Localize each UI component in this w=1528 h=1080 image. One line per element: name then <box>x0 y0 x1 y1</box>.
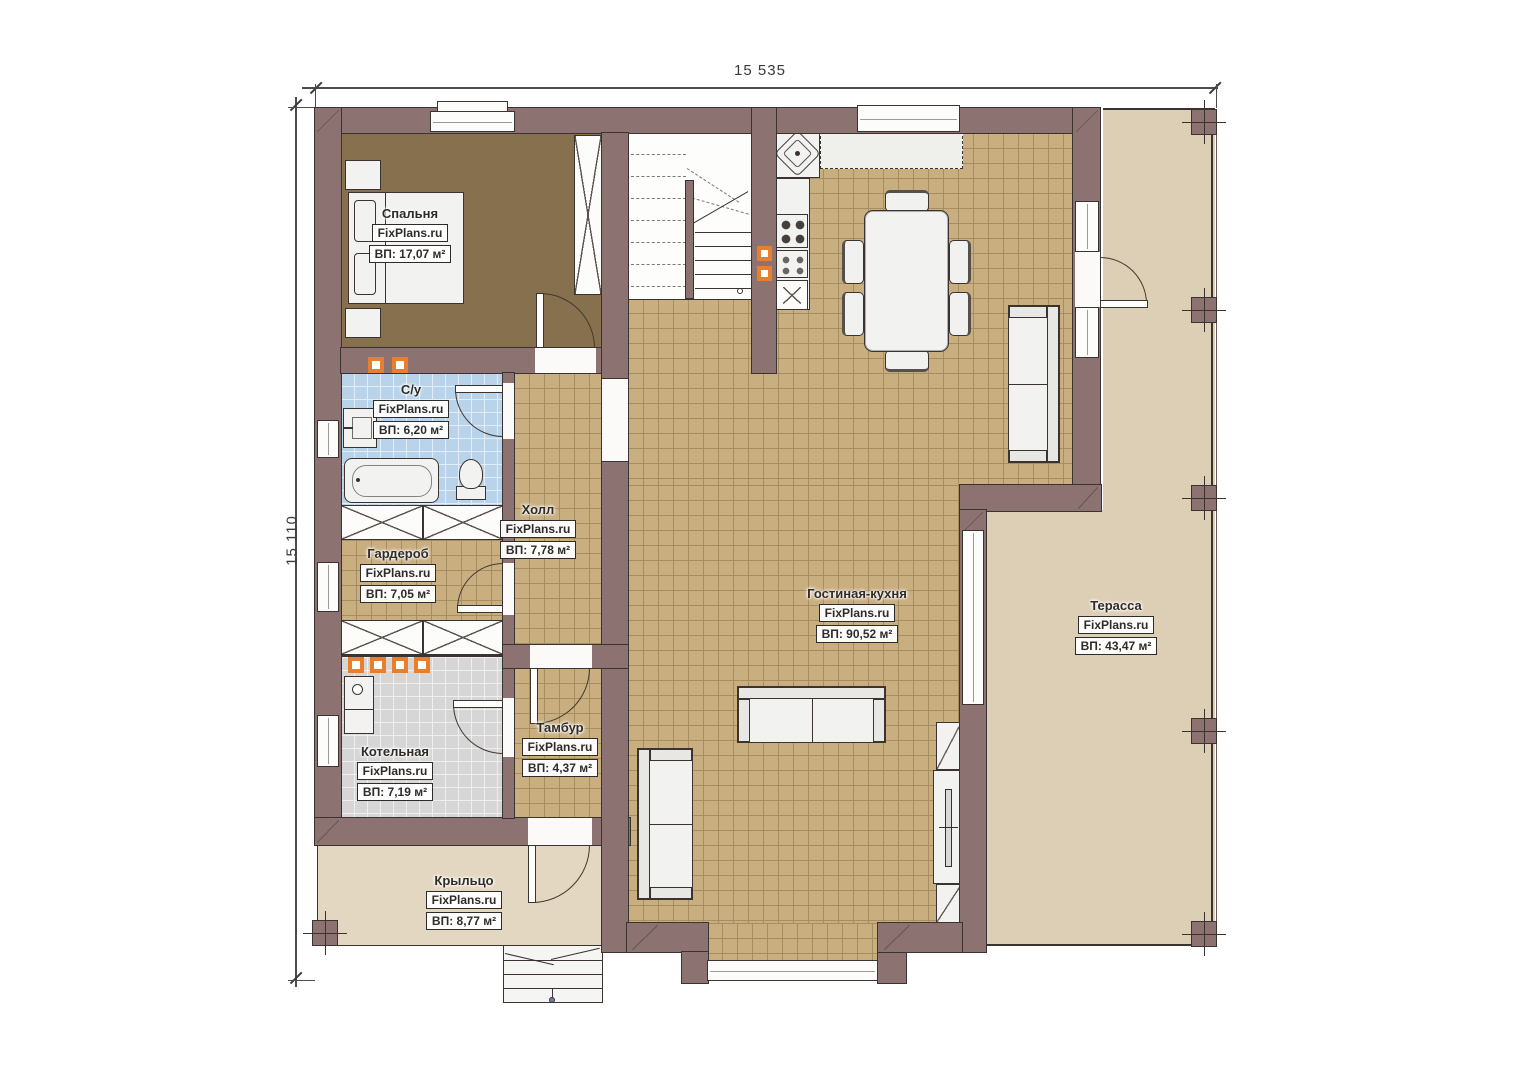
stair-tread <box>695 274 751 275</box>
room-name: С/у <box>401 382 421 397</box>
extension-line <box>288 107 315 108</box>
porch-post <box>312 920 338 946</box>
hatch-line <box>317 820 339 843</box>
closet-cabinet <box>341 505 423 540</box>
stair-tread <box>631 220 686 221</box>
dining-chair <box>842 240 864 284</box>
stair-tread <box>631 176 686 177</box>
hatch-line <box>963 512 983 532</box>
room-area: ВП: 7,78 м² <box>500 541 576 559</box>
kitchen-counter <box>820 131 963 169</box>
wall <box>752 108 776 373</box>
stair-tread <box>631 264 686 265</box>
extension-line <box>315 84 316 108</box>
terrace-edge <box>1211 110 1213 946</box>
window <box>707 960 878 981</box>
stair-winder <box>687 196 749 215</box>
wardrobe-cabinet <box>574 135 602 295</box>
room-label-bedroom: Спальня FixPlans.ru ВП: 17,07 м² <box>325 206 495 263</box>
stair-tread <box>631 198 686 199</box>
room-label-terrace: Терасса FixPlans.ru ВП: 43,47 м² <box>1031 598 1201 655</box>
dining-table <box>864 210 949 352</box>
tv-stand <box>939 827 958 828</box>
nightstand <box>345 308 381 338</box>
brand-watermark: FixPlans.ru <box>357 762 434 780</box>
toilet-bowl <box>459 459 483 489</box>
radiator <box>392 657 408 673</box>
room-area: ВП: 17,07 м² <box>369 245 452 263</box>
extension-line <box>1216 84 1217 108</box>
stair-tread <box>695 232 751 233</box>
window <box>962 530 984 705</box>
room-label-porch: Крыльцо FixPlans.ru ВП: 8,77 м² <box>379 873 549 930</box>
boiler-dial <box>352 684 363 695</box>
room-area: ВП: 7,05 м² <box>360 585 436 603</box>
brand-watermark: FixPlans.ru <box>372 224 449 242</box>
room-name: Крыльцо <box>434 873 493 888</box>
door-opening <box>528 818 592 845</box>
room-area: ВП: 90,52 м² <box>816 625 899 643</box>
dimension-left-label: 15 110 <box>284 486 301 596</box>
radiator <box>370 657 386 673</box>
brand-watermark: FixPlans.ru <box>522 738 599 756</box>
bathtub-inner <box>352 465 432 497</box>
radiator <box>348 657 364 673</box>
sofa-arm <box>1009 306 1047 318</box>
bathtub-drain <box>356 478 360 482</box>
terrace-post <box>1191 297 1217 323</box>
room-area: ВП: 6,20 м² <box>373 421 449 439</box>
hatch-line <box>317 110 339 132</box>
room-label-vestibule: Тамбур FixPlans.ru ВП: 4,37 м² <box>475 720 645 777</box>
stair-break-line <box>691 191 749 225</box>
radiator <box>757 246 772 261</box>
brand-watermark: FixPlans.ru <box>426 891 503 909</box>
window <box>857 105 960 132</box>
room-label-wardrobe: Гардероб FixPlans.ru ВП: 7,05 м² <box>313 546 483 603</box>
media-cabinet <box>936 884 962 923</box>
living-kitchen-floor <box>707 923 878 960</box>
wall-opening <box>602 378 628 462</box>
window <box>430 111 515 132</box>
radiator <box>368 357 384 373</box>
step-axis-dot <box>549 997 555 1003</box>
step-line <box>504 960 602 961</box>
stair-tread <box>631 286 686 287</box>
sofa <box>737 686 886 743</box>
media-cabinet <box>936 722 962 770</box>
window <box>1075 307 1099 358</box>
sofa-arm <box>1009 450 1047 462</box>
closet-strip <box>341 620 503 655</box>
sofa-back <box>1047 306 1059 462</box>
boiler <box>344 676 374 734</box>
dining-chair <box>885 350 929 372</box>
sofa-arm <box>650 887 692 899</box>
sofa <box>1008 305 1060 463</box>
sofa-arm <box>873 699 885 742</box>
nightstand <box>345 160 381 190</box>
brand-watermark: FixPlans.ru <box>1078 616 1155 634</box>
room-area: ВП: 4,37 м² <box>522 759 598 777</box>
closet-cabinet <box>341 620 423 655</box>
terrace-floor <box>986 510 1215 946</box>
room-area: ВП: 43,47 м² <box>1075 637 1158 655</box>
staircase <box>628 133 752 300</box>
stair-tread <box>695 260 751 261</box>
dining-chair <box>949 292 971 336</box>
room-name: Гостиная-кухня <box>807 586 907 601</box>
stair-tread <box>631 242 686 243</box>
step-diagonal <box>551 948 600 961</box>
sofa-arm <box>738 699 750 742</box>
step-line <box>504 974 602 975</box>
stair-newel-wall <box>685 180 694 299</box>
brand-watermark: FixPlans.ru <box>500 520 577 538</box>
dishwasher <box>776 280 808 310</box>
oven <box>776 250 808 278</box>
stair-rail-post <box>737 288 743 294</box>
terrace-post <box>1191 485 1217 511</box>
room-name: Терасса <box>1090 598 1142 613</box>
radiator <box>757 266 772 281</box>
brand-watermark: FixPlans.ru <box>819 604 896 622</box>
closet-cabinet <box>423 620 503 655</box>
brand-watermark: FixPlans.ru <box>373 400 450 418</box>
floor-plan: 15 535 15 110 <box>0 0 1528 1080</box>
radiator <box>392 357 408 373</box>
terrace-post <box>1191 921 1217 947</box>
terrace-edge <box>1216 110 1217 946</box>
dimension-top-label: 15 535 <box>302 62 1218 79</box>
terrace-edge <box>986 944 1215 946</box>
hatch-line <box>632 925 658 950</box>
terrace-post <box>1191 109 1217 135</box>
room-label-boiler: Котельная FixPlans.ru ВП: 7,19 м² <box>310 744 480 801</box>
tv-unit <box>933 770 962 884</box>
boiler-line <box>345 709 373 710</box>
door-leaf <box>457 605 503 613</box>
sofa-arm <box>650 749 692 761</box>
stair-tread <box>695 246 751 247</box>
window <box>1075 201 1099 252</box>
radiator <box>414 657 430 673</box>
room-name: Холл <box>522 502 555 517</box>
dining-chair <box>885 190 929 212</box>
room-name: Тамбур <box>536 720 583 735</box>
door-opening <box>535 348 596 373</box>
room-name: Спальня <box>382 206 438 221</box>
sofa-seam <box>650 824 692 825</box>
extension-line <box>288 980 315 981</box>
entry-steps <box>503 945 603 1003</box>
room-name: Котельная <box>361 744 429 759</box>
door-leaf <box>530 668 538 724</box>
door-leaf <box>1100 300 1148 308</box>
room-area: ВП: 8,77 м² <box>426 912 502 930</box>
room-area: ВП: 7,19 м² <box>357 783 433 801</box>
door-opening <box>530 645 592 668</box>
terrace-post <box>1191 718 1217 744</box>
brand-watermark: FixPlans.ru <box>360 564 437 582</box>
wall <box>682 952 708 983</box>
room-name: Гардероб <box>367 546 428 561</box>
stove <box>776 214 808 248</box>
hatch-line <box>1078 487 1098 509</box>
stair-tread <box>631 154 686 155</box>
sofa-seam <box>1009 384 1047 385</box>
door-opening <box>1075 252 1100 307</box>
hatch-line <box>884 925 910 950</box>
dining-chair <box>949 240 971 284</box>
door-leaf <box>536 293 544 348</box>
sofa-back <box>738 687 885 699</box>
dining-chair <box>842 292 864 336</box>
sofa-seam <box>812 699 813 742</box>
wall <box>878 952 906 983</box>
hatch-line <box>1076 110 1098 132</box>
door-leaf <box>453 700 503 708</box>
room-label-living-kitchen: Гостиная-кухня FixPlans.ru ВП: 90,52 м² <box>772 586 942 643</box>
sofa <box>637 748 693 900</box>
room-label-bathroom: С/у FixPlans.ru ВП: 6,20 м² <box>326 382 496 439</box>
bathtub <box>344 458 439 503</box>
door-opening <box>503 563 514 615</box>
dimension-top-line <box>302 87 1218 89</box>
door-opening <box>503 383 514 439</box>
